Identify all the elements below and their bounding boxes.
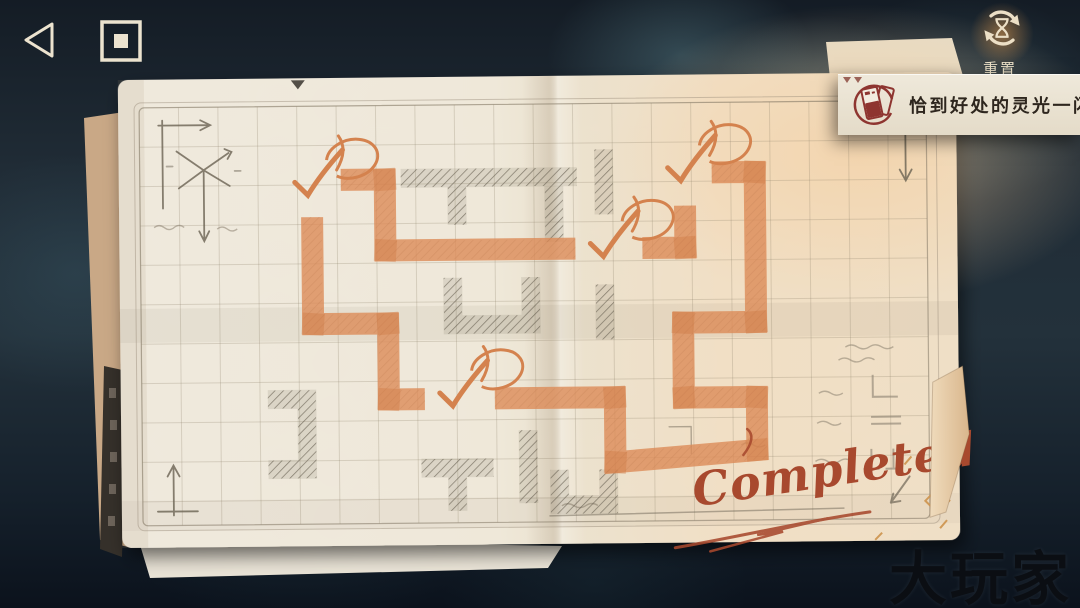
banner-triangle-icon (843, 77, 851, 83)
game-screen: Completed (0, 0, 1080, 608)
notification-banner[interactable]: 恰到好处的灵光一闪 (838, 74, 1080, 135)
banner-message: 恰到好处的灵光一闪 (909, 92, 1080, 118)
stop-button[interactable] (98, 18, 144, 64)
chevron-left-icon (20, 20, 62, 60)
stop-square-icon (98, 18, 144, 64)
page-fold-flap (929, 366, 970, 517)
reset-hourglass-icon (980, 6, 1024, 50)
cards-icon (848, 79, 900, 131)
banner-triangle-icon (854, 77, 862, 83)
back-button[interactable] (20, 20, 62, 60)
watermark: 大玩家 (889, 532, 1072, 608)
reset-button[interactable]: 重置 (950, 6, 1050, 80)
